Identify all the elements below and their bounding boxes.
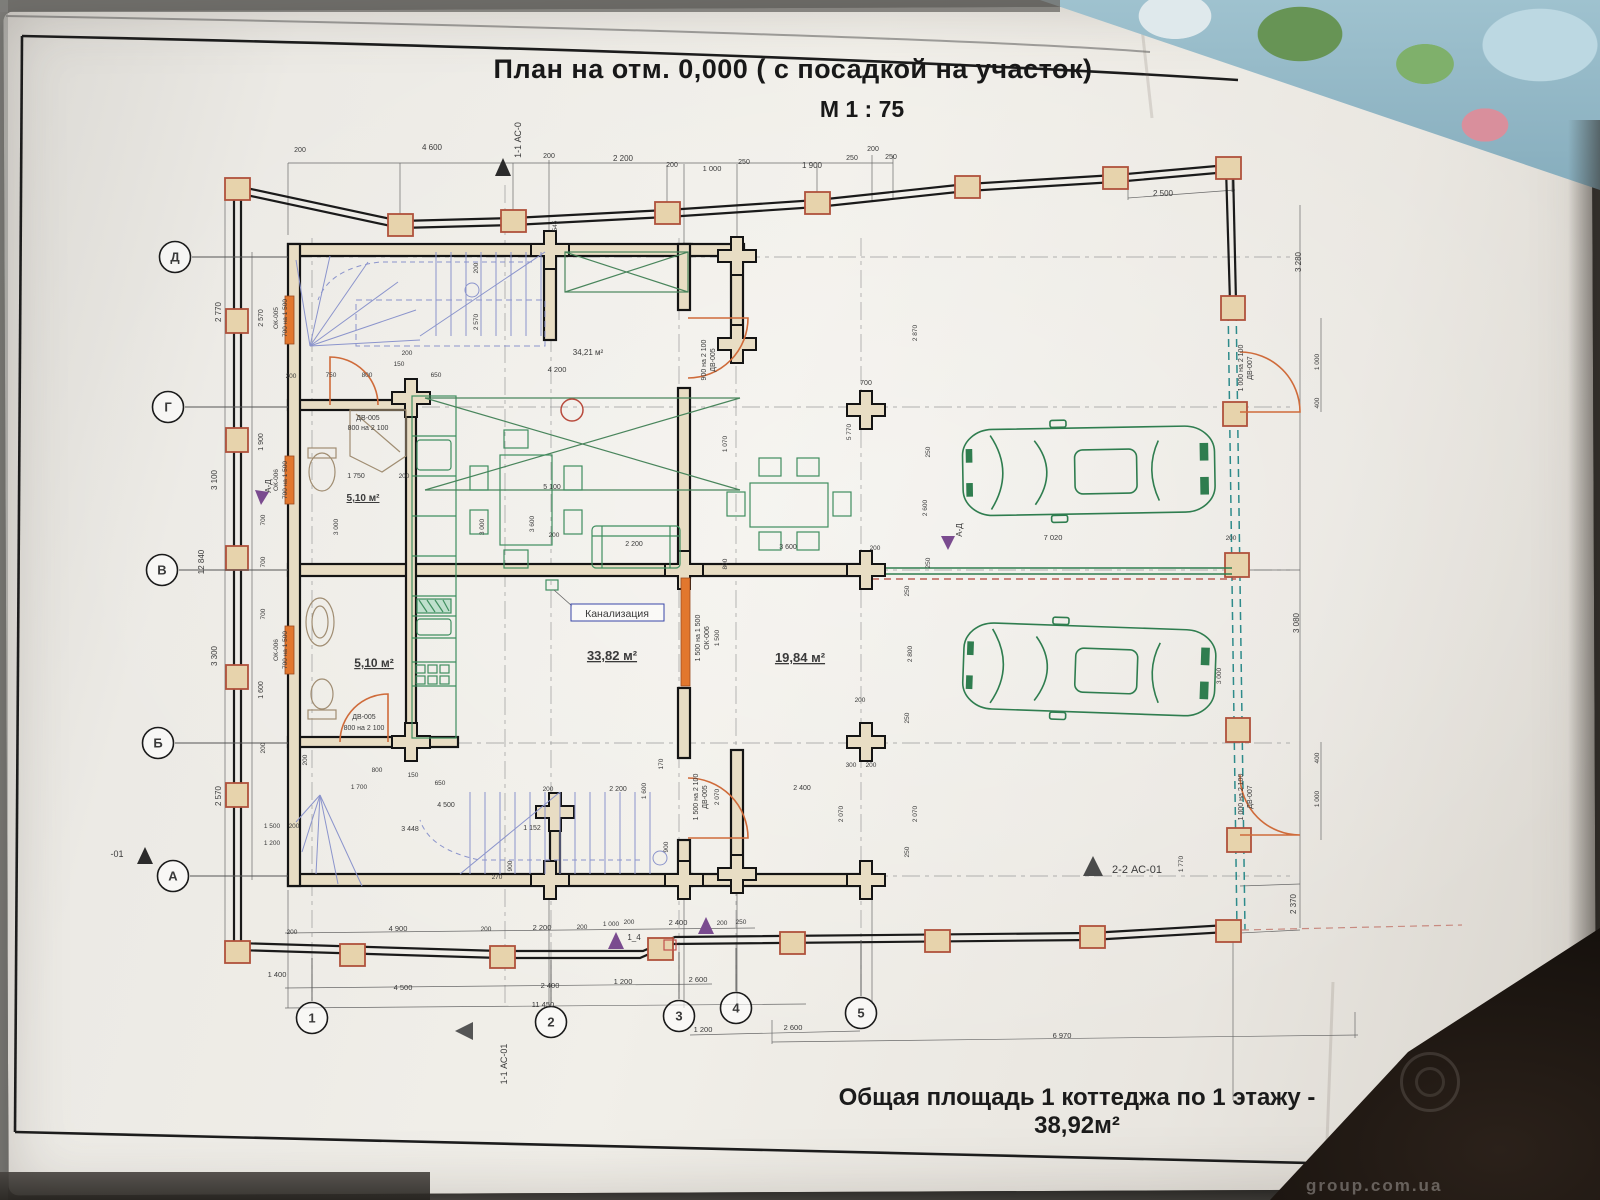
table-edge-left: [0, 0, 8, 1200]
dim-label: 1 200: [264, 840, 281, 847]
axis-bubble-label: А: [168, 869, 178, 884]
dim-label: 2 200: [609, 786, 627, 793]
dim-label: ДВ-007: [1247, 356, 1254, 380]
dim-label: 4 500: [394, 983, 413, 992]
dim-label: 1 152: [523, 825, 541, 832]
dim-label: 270: [492, 874, 503, 881]
axis-col-bubble: 2: [536, 1007, 567, 1038]
room-area-label: 34,21 м²: [573, 348, 604, 357]
dim-label: 11 450: [532, 1000, 554, 1009]
dim-label: 2 800: [907, 645, 914, 662]
section-mark-label: -01: [110, 849, 123, 859]
dim-label: 800 на 2 100: [348, 425, 389, 432]
axis-bubble-label: 3: [675, 1009, 682, 1024]
dim-label: 2 200: [613, 154, 634, 163]
dim-label: 400: [1314, 752, 1321, 763]
dim-label: 700 на 1 500: [282, 631, 289, 669]
dim-label: 12 840: [197, 549, 206, 574]
dim-label: 200: [543, 153, 555, 160]
house-walls: [288, 244, 872, 886]
dim-label: ОК-006: [704, 626, 711, 650]
dim-label: 3 100: [210, 469, 219, 490]
dim-label: 200: [717, 920, 728, 927]
dim-label: 700: [260, 608, 267, 619]
dim-label: 4 200: [548, 365, 567, 374]
dim-label: 250: [904, 846, 911, 857]
dim-label: 400: [1314, 397, 1321, 408]
dim-label: 800: [722, 558, 729, 569]
dim-label: ОК-006: [273, 639, 280, 661]
axis-row-bubble: Д: [160, 242, 191, 273]
dim-label: 2 600: [922, 499, 929, 516]
dim-label: 2 570: [214, 785, 223, 806]
dim-label: 1 500 на 2 100: [693, 774, 700, 821]
dim-label: 2 400: [793, 785, 811, 792]
dim-label: 5 770: [846, 423, 853, 440]
dim-label: 150: [394, 361, 405, 368]
dim-label: 700 на 1 500: [282, 299, 289, 337]
dim-label: 3 448: [401, 826, 419, 833]
dim-label: 1 000 на 2 100: [1238, 774, 1245, 821]
dim-label: 1 900: [258, 433, 265, 451]
dim-label: 2 400: [669, 918, 688, 927]
table-edge-top: [0, 0, 1060, 12]
dim-label: 3 280: [1294, 251, 1303, 272]
axis-bubble-label: 4: [732, 1001, 740, 1016]
dim-label: 800 на 2 100: [344, 725, 385, 732]
window-markers: [285, 296, 690, 686]
dim-label: 700: [260, 514, 267, 525]
dim-label: 750: [326, 372, 337, 379]
dim-label: 1 700: [351, 784, 368, 791]
dim-label: 1 500 на 1 500: [695, 615, 702, 662]
room-area-label: 33,82 м²: [587, 648, 638, 663]
staircase-top: [296, 252, 545, 346]
room-area-label: 19,84 м²: [775, 650, 826, 665]
dim-label: 2 600: [784, 1023, 803, 1032]
dining-set-2: [727, 458, 851, 550]
dim-label: 200: [473, 262, 480, 273]
dim-label: 2 070: [838, 805, 845, 822]
cross-braces: [425, 252, 740, 490]
logo-spiral-icon: [1400, 1052, 1460, 1112]
dim-label: 2 600: [689, 975, 708, 984]
dim-label: 200: [867, 146, 879, 153]
dim-label: 250: [904, 712, 911, 723]
dim-label: 2 070: [912, 805, 919, 822]
dim-label: 3 080: [1292, 612, 1301, 633]
dim-label: 300: [846, 762, 857, 769]
dim-label: ДВ-005: [702, 785, 709, 809]
ceiling-point: [561, 399, 583, 421]
dim-label: 200: [302, 754, 309, 765]
dim-label: 4 900: [389, 924, 408, 933]
dim-label: 1 070: [722, 435, 729, 452]
dim-label: 2 570: [258, 309, 265, 327]
dim-label: 200: [402, 350, 413, 357]
dim-label: ОК-005: [273, 307, 280, 329]
plan-title: План на отм. 0,000 ( с посадкой на участ…: [493, 54, 1093, 85]
axis-bubble-label: 1: [308, 1011, 315, 1026]
floor-plan-drawing: ДГВБА12345 2004 6002002 2002001 0002501 …: [0, 0, 1600, 1200]
dim-label: 5 100: [543, 484, 561, 491]
axis-col-bubble: 4: [721, 993, 752, 1024]
room-area-label: 5,10 м²: [347, 493, 381, 504]
dim-label: 200: [577, 924, 588, 931]
dim-label: 250: [846, 155, 858, 162]
dim-label: 2 400: [541, 981, 560, 990]
dim-label: 900 на 2 100: [701, 339, 708, 380]
parked-cars: [962, 418, 1217, 725]
axis-bubble-label: Б: [153, 736, 162, 751]
dim-label: 250: [736, 919, 747, 926]
dim-label: 1 000: [1314, 353, 1321, 370]
dim-label: ОК-006: [273, 469, 280, 491]
dim-label: 200: [855, 697, 866, 704]
dim-label: 2 770: [214, 301, 223, 322]
plan-scale: М 1 : 75: [762, 96, 962, 123]
car-top-view: [962, 614, 1217, 725]
dim-label: 200: [543, 786, 554, 793]
axis-bubble-label: Г: [164, 400, 172, 415]
dim-label: 170: [658, 758, 665, 769]
axis-bubble-label: В: [157, 563, 166, 578]
axis-bubble-label: Д: [170, 250, 180, 265]
dim-label: 1 000: [703, 164, 722, 173]
door-swings: [330, 318, 1300, 838]
dim-label: 545: [552, 220, 559, 231]
dim-label: 200: [481, 926, 492, 933]
dim-label: ДВ-005: [710, 348, 717, 372]
axis-row-bubble: Б: [143, 728, 174, 759]
axis-col-bubble: 3: [664, 1001, 695, 1032]
axis-bubbles: ДГВБА12345: [143, 242, 877, 1038]
dim-label: 2 870: [912, 324, 919, 341]
bubble-leaders: [175, 257, 861, 1005]
axis-row-bubble: Г: [153, 392, 184, 423]
room-area-label: 5,10 м²: [354, 656, 394, 670]
dim-label: 800: [362, 372, 373, 379]
dim-label: 1 400: [268, 970, 287, 979]
dim-label: 650: [435, 780, 446, 787]
axis-bubble-label: 5: [857, 1006, 864, 1021]
dim-label: 200: [866, 762, 877, 769]
dim-label: 1 900: [802, 161, 823, 170]
dim-label: 4 600: [422, 143, 443, 152]
dimension-lines: [225, 155, 1358, 1100]
table-edge-right: [1568, 120, 1600, 1020]
dining-set-1: [470, 430, 582, 568]
staircase-bottom: [296, 792, 667, 886]
dim-label: 2 200: [625, 541, 643, 548]
dim-label: 2 370: [1289, 893, 1298, 914]
watermark-text: group.com.ua: [1306, 1176, 1586, 1196]
dim-label: 1 000: [603, 921, 620, 928]
dim-label: 3 000: [333, 518, 340, 535]
dim-label: 1 770: [1178, 855, 1185, 872]
dim-label: 1 600: [641, 782, 648, 799]
dim-label: 250: [904, 585, 911, 596]
axis-col-bubble: 5: [846, 998, 877, 1029]
axis-row-bubble: В: [147, 555, 178, 586]
dim-label: 200: [1226, 535, 1237, 542]
dim-label: 1 600: [258, 681, 265, 699]
sewer-label: Канализация: [585, 608, 649, 620]
dim-label: 250: [738, 159, 750, 166]
dim-label: 250: [925, 557, 932, 568]
car-top-view: [962, 418, 1216, 524]
dim-label: 900: [507, 860, 514, 871]
dim-label: 1 500: [264, 823, 281, 830]
dim-label: 150: [408, 772, 419, 779]
axis-row-bubble: А: [158, 861, 189, 892]
dim-label: 200: [666, 162, 678, 169]
section-mark-label: А-Д: [264, 479, 273, 493]
dim-label: 200: [294, 147, 306, 154]
dim-label: 200: [399, 473, 410, 480]
dim-label: 650: [431, 372, 442, 379]
dim-label: 3 300: [210, 645, 219, 666]
total-area-note: Общая площадь 1 коттеджа по 1 этажу - 38…: [812, 1084, 1342, 1140]
section-markers: [137, 158, 1103, 1040]
dim-label: 7 020: [1044, 533, 1063, 542]
dim-label: 200: [624, 919, 635, 926]
dim-label: 4 500: [437, 802, 455, 809]
dim-label: 700: [260, 556, 267, 567]
dim-label: 3 600: [779, 544, 797, 551]
dim-label: 1 000: [1314, 790, 1321, 807]
dim-label: 200: [289, 823, 300, 830]
section-mark-label: А-Д: [955, 523, 964, 537]
section-mark-label: 1_4: [627, 933, 641, 942]
table-edge-bottom: [0, 1172, 430, 1200]
section-mark-label: 2-2 АС-01: [1112, 864, 1162, 876]
section-mark-label: 1-1 АС-01: [499, 1044, 509, 1085]
dim-label: 700: [860, 380, 872, 387]
dim-label: 2 570: [473, 313, 480, 330]
dim-label: 1 200: [614, 977, 633, 986]
dim-label: 200: [260, 742, 267, 753]
dim-label: 800: [372, 767, 383, 774]
dim-label: 1 200: [694, 1025, 713, 1034]
dim-label: 3 000: [479, 518, 486, 535]
dim-label: 200: [286, 373, 297, 380]
dim-label: 700 на 1 500: [282, 461, 289, 499]
dim-label: 6 970: [1053, 1031, 1072, 1040]
dim-label: 2 070: [714, 788, 721, 805]
dim-label: 1 000 на 2 100: [1238, 345, 1245, 392]
dim-label: 1 500: [714, 629, 721, 646]
dim-label: 2 200: [533, 923, 552, 932]
section-mark-label: 1-1 АС-0: [513, 122, 523, 158]
dim-label: 200: [549, 532, 560, 539]
axis-col-bubble: 1: [297, 1003, 328, 1034]
dim-label: 200: [287, 929, 298, 936]
dim-label: 900: [663, 841, 670, 852]
dim-label: 2 500: [1153, 189, 1174, 198]
dim-label: 3 600: [529, 515, 536, 532]
dim-label: 250: [925, 446, 932, 457]
dim-label: ДВ-005: [356, 415, 380, 422]
dim-label: ДВ-005: [352, 714, 376, 721]
dim-label: 3 000: [1216, 667, 1223, 684]
axis-bubble-label: 2: [547, 1015, 554, 1030]
dim-label: 200: [870, 545, 881, 552]
dim-label: ДВ-007: [1247, 785, 1254, 809]
dim-label: 1 750: [347, 473, 365, 480]
paper-crease: [1142, 28, 1333, 1168]
dim-label: 250: [885, 154, 897, 161]
